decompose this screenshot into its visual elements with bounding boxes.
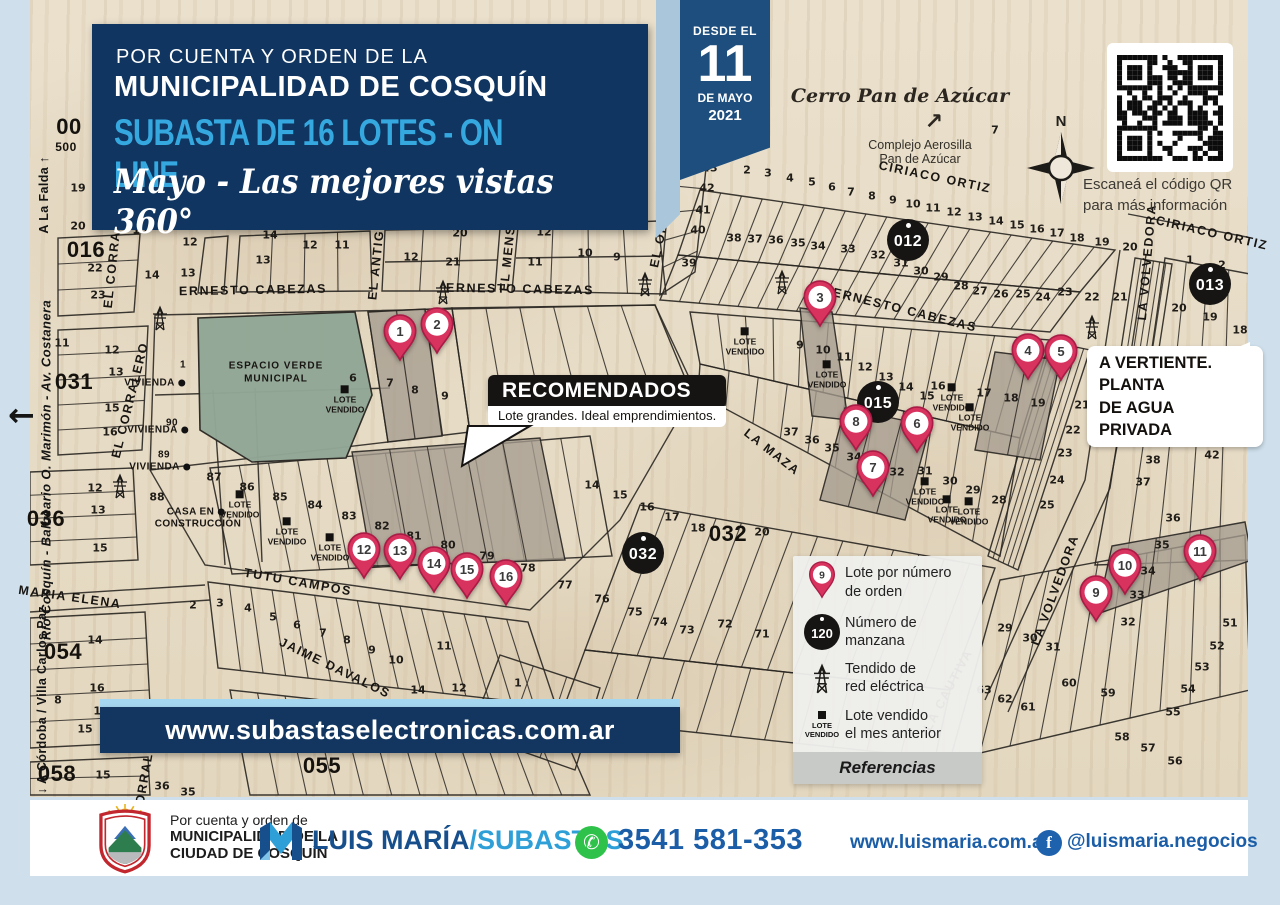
lot-number: 42	[1204, 449, 1219, 462]
lot-number: 60	[1061, 677, 1076, 690]
manzana-number: 012	[894, 233, 922, 251]
website-url[interactable]: www.subastaselectronicas.com.ar	[100, 707, 680, 753]
lot-number: 2	[189, 599, 197, 612]
street-label: MARIA ELENA	[18, 583, 123, 611]
header-subtitle: Mayo - Las mejores vistas 360°	[114, 162, 595, 242]
house-dot-icon	[179, 379, 186, 386]
legend-text: Lote vendidoel mes anterior	[845, 707, 941, 743]
brand-name: LUIS MARÍA	[312, 825, 470, 855]
svg-text:5: 5	[1057, 344, 1064, 359]
lot-number: 8	[868, 190, 876, 203]
lot-number: 20	[1122, 241, 1137, 254]
lot-number: 1	[514, 677, 522, 690]
lot-number: 12	[451, 682, 466, 695]
lot-number: 6	[349, 372, 357, 385]
lot-number: 13	[180, 267, 195, 280]
lot-number: 19	[1030, 397, 1045, 410]
lot-number: 53	[1194, 661, 1209, 674]
lot-number: 52	[1209, 640, 1224, 653]
lot-pin-1[interactable]: 1	[382, 314, 418, 362]
facebook-handle[interactable]: @luismaria.negocios	[1067, 831, 1258, 853]
lot-number: 9	[441, 390, 449, 403]
lot-number: 3	[216, 597, 224, 610]
ribbon-year: 2021	[680, 107, 770, 124]
lot-pin-16[interactable]: 16	[488, 559, 524, 607]
legend-title: Referencias	[793, 752, 982, 784]
lot-number: 7	[847, 186, 855, 199]
sold-square-icon	[966, 403, 974, 411]
lot-pin-2[interactable]: 2	[419, 307, 455, 355]
sold-lot-marker: LOTEVENDIDO	[950, 497, 989, 526]
sold-square-icon	[326, 533, 334, 541]
lot-number: 24	[1035, 291, 1050, 304]
lot-number: 74	[652, 616, 667, 629]
street-label: ERNESTO CABEZAS	[831, 285, 978, 334]
lot-number: 11	[527, 256, 542, 269]
lot-number: 13	[255, 254, 270, 267]
legend-item-pin: 9Lote por númerode orden	[793, 556, 982, 609]
cerro-label: Cerro Pan de Azúcar	[791, 85, 1009, 107]
lot-number: 71	[754, 628, 769, 641]
lot-number: 14	[87, 634, 102, 647]
sold-square-icon	[921, 477, 929, 485]
qr-code[interactable]	[1107, 43, 1233, 172]
lot-number: 18	[1069, 232, 1084, 245]
lot-number: 12	[104, 344, 119, 357]
website-banner-accent	[100, 699, 680, 707]
lot-number: 22	[87, 262, 102, 275]
lot-number: 13	[90, 504, 105, 517]
ribbon-body: DESDE EL 11 DE MAYO 2021	[680, 0, 770, 180]
footer-bar: Por cuenta y orden de MUNICIPALIDAD DE L…	[30, 800, 1248, 876]
lot-number: 24	[1049, 474, 1064, 487]
sold-square-icon	[948, 383, 956, 391]
lot-number: 37	[1135, 476, 1150, 489]
legend-sold-icon: LOTEVENDIDO	[805, 711, 839, 739]
lot-number: 85	[272, 491, 287, 504]
legend-pin-icon: 9	[808, 561, 836, 604]
legend-text: Lote por númerode orden	[845, 564, 951, 600]
qr-caption-2: para más información	[1083, 197, 1227, 214]
whatsapp-icon: ✆	[575, 826, 608, 859]
block-number: 031	[55, 369, 93, 395]
green-space-label: ESPACIO VERDE	[229, 361, 324, 372]
manzana-badge: 013	[1189, 263, 1231, 305]
street-label: ERNESTO CABEZAS	[179, 282, 327, 299]
lot-number: 29	[997, 622, 1012, 635]
complejo-label-2: Pan de Azúcar	[879, 152, 960, 166]
lot-number: 8	[54, 694, 62, 707]
lot-number: 35	[790, 237, 805, 250]
lot-number: 5	[808, 176, 816, 189]
lot-pin-5[interactable]: 5	[1043, 334, 1079, 382]
lot-number: 15	[95, 769, 110, 782]
lot-number: 28	[953, 280, 968, 293]
block-number: 055	[303, 753, 341, 779]
lot-number: 20	[754, 526, 769, 539]
facebook-glyph: f	[1046, 833, 1052, 853]
lot-number: 25	[1039, 499, 1054, 512]
lot-pin-10[interactable]: 10	[1107, 548, 1143, 596]
lot-number: 19	[1094, 236, 1109, 249]
lot-number: 22	[1084, 291, 1099, 304]
lot-number: 6	[293, 619, 301, 632]
lot-number: 82	[374, 520, 389, 533]
lot-number: 22	[1065, 424, 1080, 437]
svg-text:15: 15	[460, 562, 475, 577]
sold-square-icon	[823, 360, 831, 368]
svg-text:13: 13	[393, 543, 408, 558]
manzana-number: 032	[629, 546, 657, 564]
lot-number: 8	[411, 384, 419, 397]
map-annotation: VIVIENDA	[127, 425, 188, 436]
sold-lot-marker: LOTEVENDIDO	[221, 490, 260, 519]
map-edge-label: A La Falda ↑	[37, 156, 51, 233]
lot-number: 34	[810, 240, 825, 253]
lot-number: 7	[386, 377, 394, 390]
lot-number: 62	[997, 693, 1012, 706]
lot-pin-12[interactable]: 12	[346, 532, 382, 580]
legend-item-tower: Tendido dered eléctrica	[793, 655, 982, 701]
svg-text:10: 10	[1118, 558, 1133, 573]
lot-number: 39	[681, 257, 696, 270]
lot-number: 29	[965, 484, 980, 497]
compass-n: N	[1056, 113, 1067, 130]
lot-number: 35	[180, 786, 195, 799]
lot-number: 36	[154, 780, 169, 793]
sold-lot-marker: LOTEVENDIDO	[268, 517, 307, 546]
lot-number: 72	[717, 618, 732, 631]
lot-pin-14[interactable]: 14	[416, 546, 452, 594]
lot-number: 15	[104, 402, 119, 415]
lot-number: 32	[1120, 616, 1135, 629]
lot-number: 12	[87, 482, 102, 495]
house-dot-icon	[184, 463, 191, 470]
svg-text:9: 9	[819, 570, 825, 581]
lot-number: 9	[796, 339, 804, 352]
sold-square-icon	[965, 497, 973, 505]
legend-item-square: LOTEVENDIDOLote vendidoel mes anterior	[793, 702, 982, 748]
lot-number: 11	[54, 337, 69, 350]
lot-number: 23	[1057, 447, 1072, 460]
lot-number: 33	[840, 243, 855, 256]
vertiente-tail	[1236, 342, 1250, 376]
svg-text:14: 14	[427, 556, 442, 571]
lot-number: 28	[991, 494, 1006, 507]
website-banner[interactable]: www.subastaselectronicas.com.ar	[100, 699, 680, 753]
lot-number: 11	[436, 640, 451, 653]
svg-text:9: 9	[1092, 585, 1099, 600]
lot-number: 10	[905, 198, 920, 211]
lot-number: 54	[1180, 683, 1195, 696]
sold-square-icon	[741, 327, 749, 335]
block-number: 016	[67, 237, 105, 263]
lot-pin-15[interactable]: 15	[449, 552, 485, 600]
lot-number: 4	[244, 602, 252, 615]
lot-pin-7[interactable]: 7	[855, 450, 891, 498]
lot-number: 55	[1165, 706, 1180, 719]
date-ribbon: DESDE EL 11 DE MAYO 2021	[656, 0, 772, 245]
map-annotation: 89	[158, 450, 170, 461]
lot-pin-13[interactable]: 13	[382, 533, 418, 581]
lot-number: 61	[1020, 701, 1035, 714]
lot-number: 13	[967, 211, 982, 224]
lot-number: 76	[594, 593, 609, 606]
lot-number: 14	[410, 684, 425, 697]
lot-number: 87	[206, 471, 221, 484]
facebook-icon: f	[1036, 830, 1062, 856]
recomendados-title: RECOMENDADOS	[488, 375, 726, 408]
street-label: TUTU CAMPOS	[243, 566, 353, 599]
svg-text:2: 2	[433, 317, 440, 332]
lot-number: 6	[828, 181, 836, 194]
lot-number: 11	[925, 202, 940, 215]
manzana-badge: 012	[887, 219, 929, 261]
luis-maria-logo-icon	[258, 817, 304, 861]
lot-pin-8[interactable]: 8	[838, 404, 874, 452]
manzana-number: 013	[1196, 277, 1224, 295]
street-label: LA VOLVEDORA	[1135, 203, 1159, 321]
lot-number: 36	[1165, 512, 1180, 525]
phone-number[interactable]: 3541 581-353	[618, 824, 803, 857]
legend-tower-icon	[809, 662, 835, 694]
sold-square-icon	[341, 385, 349, 393]
lot-number: 16	[89, 682, 104, 695]
lot-number: 57	[1140, 742, 1155, 755]
lot-number: 20	[1171, 302, 1186, 315]
lot-number: 31	[1045, 641, 1060, 654]
lot-number: 14	[144, 269, 159, 282]
lot-number: 10	[815, 344, 830, 357]
cosquin-coat-of-arms	[92, 804, 158, 874]
sold-square-icon	[283, 517, 291, 525]
ribbon-fold	[656, 0, 680, 238]
lot-number: 21	[445, 256, 460, 269]
lot-number: 9	[889, 194, 897, 207]
ribbon-month: DE MAYO	[680, 91, 770, 105]
map-annotation: VIVIENDA	[129, 462, 190, 473]
map-edge-label: ↓ A Córdoba / Villa Carlos Paz	[35, 606, 49, 794]
lot-number: 18	[690, 522, 705, 535]
lot-number: 32	[889, 466, 904, 479]
lot-number: 16	[639, 501, 654, 514]
lot-number: 7	[319, 627, 327, 640]
lot-number: 9	[368, 644, 376, 657]
block-number: 00	[56, 114, 81, 140]
whatsapp-glyph: ✆	[583, 830, 600, 855]
lot-number: 15	[92, 542, 107, 555]
ribbon-day: 11	[680, 38, 770, 91]
lot-number: 35	[1154, 539, 1169, 552]
svg-text:1: 1	[396, 324, 403, 339]
block-number: 032	[709, 521, 747, 547]
lot-number: 37	[783, 426, 798, 439]
street-label: LA VOLVEDORA	[1028, 533, 1081, 648]
lot-number: 30	[942, 475, 957, 488]
lot-number: 14	[988, 215, 1003, 228]
lot-number: 15	[1009, 219, 1024, 232]
house-dot-icon	[182, 426, 189, 433]
svg-text:6: 6	[913, 416, 920, 431]
header-municipality: MUNICIPALIDAD DE COSQUÍN	[114, 71, 548, 104]
lot-pin-6[interactable]: 6	[899, 406, 935, 454]
recomendados-tail	[450, 424, 536, 470]
lot-number: 18	[1232, 324, 1247, 337]
qr-caption-1: Escaneá el código QR	[1083, 176, 1232, 193]
svg-text:11: 11	[1193, 544, 1207, 559]
svg-text:4: 4	[1024, 343, 1032, 358]
recomendados-callout: RECOMENDADOS Lote grandes. Ideal emprend…	[488, 375, 726, 427]
map-annotation: 1	[180, 360, 186, 371]
lot-number: 56	[1167, 755, 1182, 768]
lot-number: 27	[972, 285, 987, 298]
map-annotation: VIVIENDA	[124, 378, 185, 389]
footer-website[interactable]: www.luismaria.com.ar	[850, 832, 1050, 854]
manzana-badge: 032	[622, 532, 664, 574]
lot-number: 84	[307, 499, 322, 512]
svg-text:3: 3	[816, 290, 823, 305]
legend-text: Número demanzana	[845, 614, 917, 650]
lot-number: 10	[388, 654, 403, 667]
lot-number: 25	[1015, 288, 1030, 301]
legend-manzana-icon: 120	[804, 614, 840, 650]
lot-number: 14	[898, 381, 913, 394]
green-space-label: MUNICIPAL	[244, 374, 308, 385]
lot-pin-11[interactable]: 11	[1182, 534, 1218, 582]
legend-panel: 9Lote por númerode orden120Número demanz…	[793, 556, 982, 784]
map-annotation: CASA EN	[167, 507, 225, 518]
block-number: 500	[55, 140, 77, 154]
svg-text:7: 7	[869, 460, 876, 475]
vertiente-line-2: DE AGUA PRIVADA	[1099, 397, 1251, 442]
street-label: EL CORRALERO	[109, 341, 151, 460]
lot-number: 59	[1100, 687, 1115, 700]
lot-number: 9	[613, 251, 621, 264]
lot-number: 32	[870, 249, 885, 262]
map-edge-label: Río Cosquín - Balneario O. Marimón - Av.…	[39, 300, 54, 640]
lot-number: 19	[1202, 311, 1217, 324]
map-annotation: CONSTRUCCIÓN	[155, 519, 241, 530]
lot-number: 8	[343, 634, 351, 647]
lot-number: 12	[857, 361, 872, 374]
lot-number: 21	[1112, 291, 1127, 304]
lot-number: 51	[1222, 617, 1237, 630]
street-label: CIRIACO ORTIZ	[1155, 213, 1270, 252]
vertiente-line-1: A VERTIENTE. PLANTA	[1099, 352, 1251, 397]
lot-number: 73	[679, 624, 694, 637]
lot-number: 4	[786, 172, 794, 185]
river-direction-arrow-icon: ←	[8, 396, 35, 434]
lot-number: 77	[557, 579, 572, 592]
lot-number: 29	[933, 271, 948, 284]
lot-number: 5	[269, 611, 277, 624]
header-banner: POR CUENTA Y ORDEN DE LA MUNICIPALIDAD D…	[92, 24, 648, 230]
svg-text:12: 12	[357, 542, 372, 557]
lot-number: 1	[1186, 254, 1194, 267]
lot-number: 75	[627, 606, 642, 619]
cerro-arrow-icon: ↗	[925, 110, 943, 135]
lot-number: 26	[993, 288, 1008, 301]
lot-number: 23	[1057, 286, 1072, 299]
lot-number: 16	[1029, 223, 1044, 236]
lot-number: 30	[913, 265, 928, 278]
lot-number: 31	[917, 465, 932, 478]
complejo-label-1: Complejo Aerosilla	[868, 138, 972, 152]
street-label: ERNESTO CABEZAS	[446, 281, 594, 298]
lot-number: 15	[77, 723, 92, 736]
lot-pin-4[interactable]: 4	[1010, 333, 1046, 381]
legend-text: Tendido dered eléctrica	[845, 660, 924, 696]
lot-number: 14	[584, 479, 599, 492]
lot-pin-3[interactable]: 3	[802, 280, 838, 328]
flyer: 1920222311121315161213151416178151515121…	[0, 0, 1280, 905]
lot-number: 83	[341, 510, 356, 523]
lot-number: 20	[70, 220, 85, 233]
legend-item-badge: 120Número demanzana	[793, 609, 982, 655]
sold-square-icon	[236, 490, 244, 498]
lot-number: 7	[991, 124, 999, 137]
lot-number: 15	[612, 489, 627, 502]
sold-lot-marker: LOTEVENDIDO	[808, 360, 847, 389]
lot-number: 13	[108, 366, 123, 379]
lot-number: 19	[70, 182, 85, 195]
lot-number: 12	[403, 251, 418, 264]
header-intro: POR CUENTA Y ORDEN DE LA	[116, 46, 428, 69]
sold-lot-marker: LOTEVENDIDO	[726, 327, 765, 356]
lot-number: 36	[804, 434, 819, 447]
lot-number: 10	[577, 247, 592, 260]
block-number: 054	[44, 639, 82, 665]
lot-number: 17	[976, 387, 991, 400]
lot-number: 38	[1145, 454, 1160, 467]
sold-lot-marker: LOTEVENDIDO	[951, 403, 990, 432]
lot-number: 58	[1114, 731, 1129, 744]
svg-text:8: 8	[852, 414, 859, 429]
svg-text:16: 16	[499, 569, 514, 584]
lot-number: 18	[1003, 392, 1018, 405]
lot-number: 17	[664, 511, 679, 524]
lot-number: 88	[149, 491, 164, 504]
lot-number: 12	[946, 206, 961, 219]
sold-lot-marker: LOTEVENDIDO	[326, 385, 365, 414]
sold-lot-marker: LOTEVENDIDO	[311, 533, 350, 562]
lot-number: 17	[1049, 227, 1064, 240]
